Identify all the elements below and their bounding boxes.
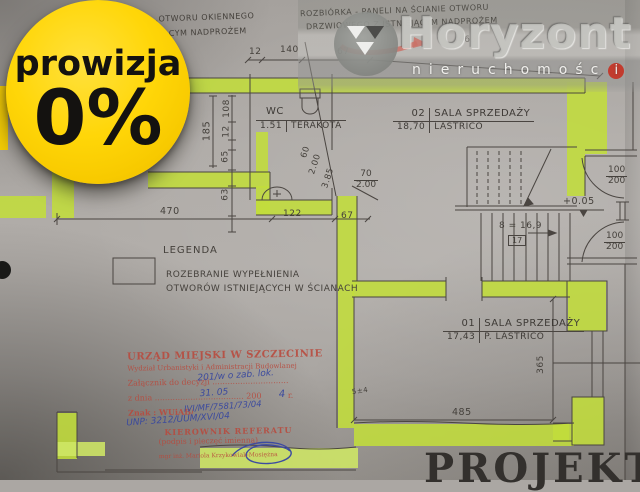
horyzont-logo-icon [334,12,398,76]
office-stamp: URZĄD MIEJSKI W SZCZECINIE Wydział Urban… [125,346,327,469]
stamp-line: (podpis i pieczęć imienna) [158,435,258,446]
stamp-handwriting: 31. 05 [199,387,228,399]
dim-label: 185 [202,121,212,142]
stamp-line: URZĄD MIEJSKI W SZCZECINIE [127,348,323,362]
room-number: 01 [443,318,480,332]
dim-label: 2.00 [354,180,378,191]
legend-symbol [113,258,155,284]
dim-label: 70 [354,170,378,180]
logo-subtitle-text: nieruchomośc [412,62,606,78]
dim-label: 485 [452,408,472,418]
room-01-label: 01 SALA SPRZEDAŻY 17,43 P. LASTRICO [443,318,584,343]
room-name: SALA SPRZEDAŻY [480,318,584,332]
dim-label: 200 [604,242,625,253]
room-floor: TERAKOTA [287,121,346,132]
room-number: 02 [393,108,430,122]
room-name: SALA SPRZEDAŻY [430,108,534,122]
projekt-title: PROJEKT [424,445,640,492]
dim-label: 100 [604,232,625,242]
legend-line: OTWORÓW ISTNIEJĄCYCH W ŚCIANACH [166,285,358,294]
dim-label: 65 [222,150,231,162]
room-area: 1.51 [256,121,287,132]
dim-label: 12 [249,48,261,57]
stairs [455,147,577,281]
dim-label: 67 [341,212,353,221]
stamp-handwriting: 4 [278,389,285,400]
dim-label: 470 [160,207,180,217]
room-area: 17,43 [443,332,480,343]
triangle-icon [356,42,374,55]
triangle-icon [347,26,365,39]
room-floor: P. LASTRICO [480,332,584,343]
stamp-line: r. [288,391,294,400]
dim-label: 12 [223,125,232,137]
level-label: +0.05 [563,197,595,207]
logo-title: Horyzont [398,8,632,59]
dim-label: 200 [606,176,627,187]
logo-red-dot-icon: i [608,63,624,79]
legend-title: LEGENDA [163,246,218,256]
logo-subtitle: nieruchomości [412,62,624,79]
dim-label: 122 [283,210,302,219]
dim-label: 63 [222,188,231,200]
stairs-label: 8 = 16,9 [499,222,542,231]
door-dim: 100 200 [604,232,625,253]
wc-door-dim: 70 2.00 [354,170,378,191]
dim-label: 140 [280,46,299,55]
dim-label: 108 [223,99,232,118]
room-area: 18,70 [393,122,430,133]
room-name: WC [256,106,346,121]
room-wc-label: WC 1.51 TERAKOTA [256,106,346,132]
legend-line: ROZEBRANIE WYPEŁNIENIA [166,271,300,280]
dim-label: 100 [606,166,627,176]
commission-badge: prowizja 0% [6,0,190,184]
stamp-line: mgr inż. Mariola Krzykowiak-Mosiężna [159,451,278,460]
dim-label: 365 [537,355,546,374]
room-floor: LASTRICO [430,122,534,133]
badge-percent: 0% [33,86,162,151]
stairs-riser-label: 17 [508,235,526,246]
door-dim: 100 200 [606,166,627,187]
room-02-label: 02 SALA SPRZEDAŻY 18,70 LASTRICO [393,108,534,133]
triangle-icon [366,26,384,39]
